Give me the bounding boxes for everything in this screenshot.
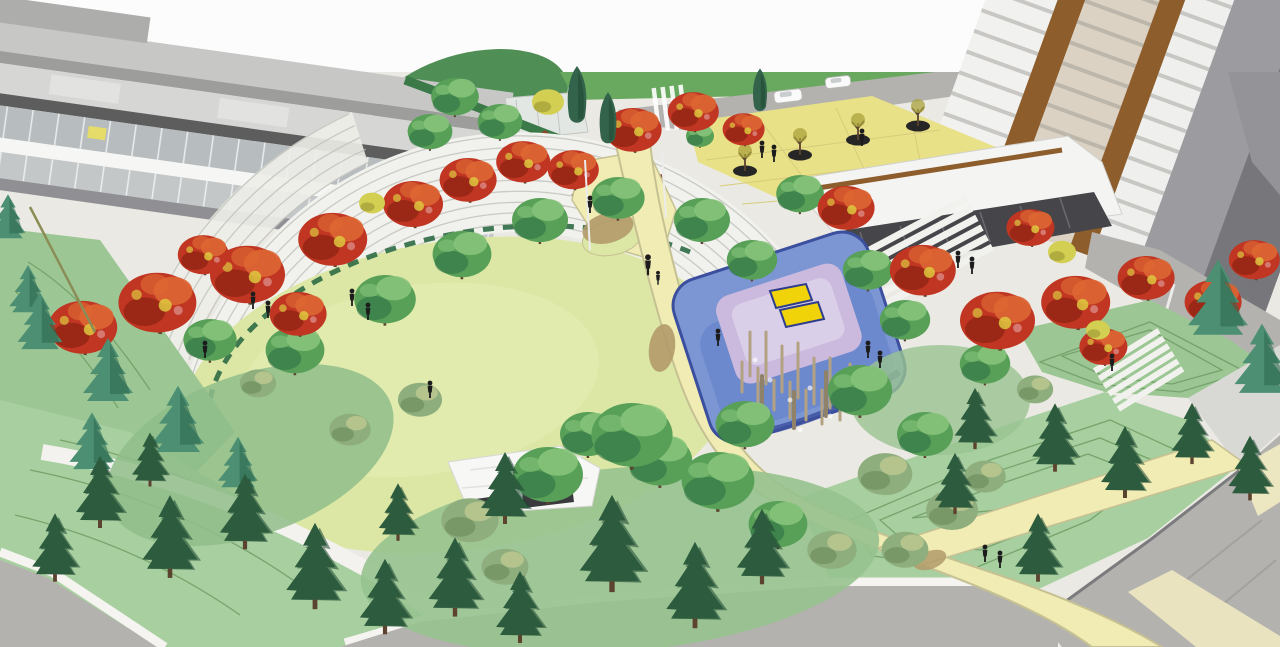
yellow-tree bbox=[1086, 320, 1110, 339]
rendering-canvas bbox=[0, 0, 1280, 647]
water-drop bbox=[768, 378, 773, 383]
sage-tree bbox=[398, 383, 442, 417]
sage-tree bbox=[882, 532, 929, 568]
water-drop bbox=[788, 398, 793, 403]
sage-tree bbox=[964, 461, 1006, 493]
water-drop bbox=[798, 428, 803, 433]
sage-tree bbox=[1017, 375, 1053, 403]
water-drop bbox=[828, 414, 833, 419]
sage-tree bbox=[858, 453, 913, 495]
sage-tree bbox=[329, 414, 371, 446]
window-sign bbox=[87, 126, 106, 140]
yellow-tree bbox=[1048, 241, 1076, 263]
water-drop bbox=[753, 358, 758, 363]
sage-tree bbox=[807, 531, 856, 569]
park-rendering bbox=[0, 0, 1280, 647]
water-drop bbox=[808, 386, 813, 391]
yellow-tree bbox=[359, 193, 385, 214]
yellow-tree bbox=[532, 89, 564, 115]
sage-tree bbox=[240, 369, 276, 397]
